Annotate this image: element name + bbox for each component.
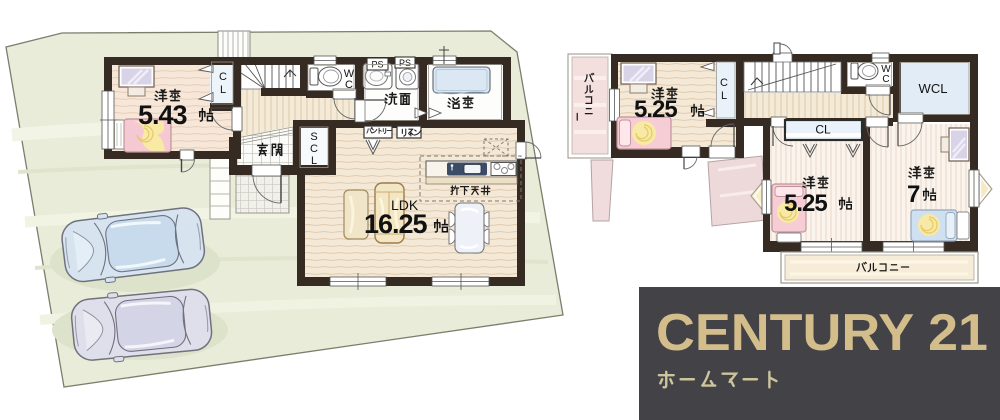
svg-text:L: L <box>220 84 226 96</box>
svg-text:C: C <box>720 77 728 89</box>
svg-text:C: C <box>345 79 353 91</box>
svg-text:C: C <box>219 71 227 83</box>
svg-text:5.25: 5.25 <box>784 190 827 217</box>
svg-text:WCL: WCL <box>919 81 948 96</box>
svg-text:L: L <box>311 155 317 167</box>
svg-text:C: C <box>310 143 318 155</box>
svg-text:PS: PS <box>399 58 411 68</box>
svg-text:5.25: 5.25 <box>634 96 677 123</box>
svg-text:16.25: 16.25 <box>364 209 428 239</box>
svg-text:S: S <box>310 131 317 143</box>
svg-text:CL: CL <box>815 123 831 137</box>
svg-text:C: C <box>882 74 889 85</box>
svg-text:5.43: 5.43 <box>138 100 188 130</box>
svg-text:7: 7 <box>907 181 920 208</box>
svg-text:CENTURY 21: CENTURY 21 <box>656 304 988 362</box>
svg-text:L: L <box>721 90 727 102</box>
